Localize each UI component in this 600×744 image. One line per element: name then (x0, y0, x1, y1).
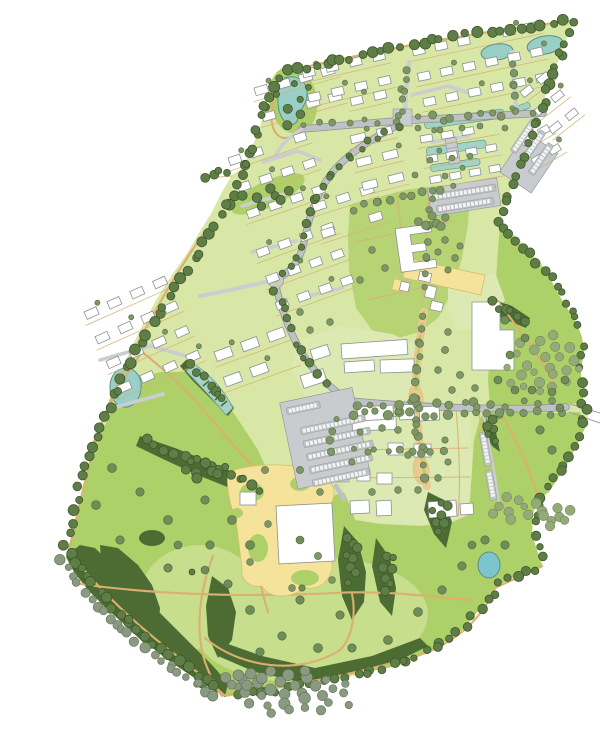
tree (297, 309, 304, 316)
tree (382, 265, 389, 272)
tree (442, 437, 448, 443)
house (430, 175, 442, 184)
tree (521, 334, 529, 342)
tree (261, 466, 268, 473)
tree (174, 541, 182, 549)
tree (468, 541, 476, 549)
tree (456, 371, 463, 378)
tree (395, 487, 402, 494)
tree (511, 386, 519, 394)
tree (314, 552, 321, 559)
tree (296, 596, 304, 604)
tree (502, 125, 508, 131)
tree (369, 247, 376, 254)
sports-hall (276, 503, 335, 564)
tree (336, 611, 344, 619)
tree (427, 449, 434, 456)
tree (348, 644, 356, 652)
house (118, 321, 133, 334)
tree (452, 255, 459, 262)
tree (459, 125, 465, 131)
tree (278, 632, 286, 640)
tree (299, 585, 305, 591)
house (107, 297, 122, 310)
house (489, 164, 501, 173)
tree (561, 376, 569, 384)
tree (228, 516, 237, 525)
tree (307, 327, 314, 334)
tree (536, 426, 544, 434)
tree (548, 388, 556, 396)
tree (442, 173, 448, 179)
house (485, 144, 497, 153)
tree (445, 459, 451, 465)
tree (415, 487, 422, 494)
tree (412, 172, 418, 178)
tree (467, 153, 473, 159)
tree (472, 385, 479, 392)
tree (379, 425, 386, 432)
tree (427, 157, 433, 163)
tree (405, 452, 412, 459)
tree (314, 644, 323, 653)
tree (296, 536, 304, 544)
tree (414, 608, 423, 617)
tree (247, 559, 254, 566)
tree (365, 449, 371, 455)
house (84, 307, 99, 320)
tree (445, 329, 452, 336)
tree (116, 536, 124, 544)
tree (369, 489, 376, 496)
tree (437, 127, 443, 133)
tree (357, 429, 363, 435)
tree (349, 459, 355, 465)
tree (548, 446, 556, 454)
house (548, 121, 562, 134)
tree (412, 429, 419, 436)
tree (317, 489, 324, 496)
leisure-pavilion (240, 492, 256, 505)
tree (435, 249, 441, 255)
tree (296, 466, 303, 473)
tree (136, 488, 144, 496)
tree (329, 577, 336, 584)
tree (441, 346, 448, 353)
tree (435, 367, 442, 374)
tree (442, 237, 449, 244)
tree (256, 648, 264, 656)
tree (265, 521, 272, 528)
tree (384, 636, 393, 645)
tree (327, 319, 334, 326)
tree (445, 267, 451, 273)
tree (357, 277, 364, 284)
hedge-spur (201, 167, 231, 182)
tree (108, 464, 117, 473)
house (130, 286, 145, 299)
tree (556, 404, 564, 412)
tree (494, 376, 502, 384)
tree (164, 564, 172, 572)
tree (501, 316, 509, 324)
tree (224, 580, 232, 588)
tree (201, 566, 209, 574)
tree (449, 155, 455, 161)
house (449, 171, 461, 180)
tree (435, 475, 442, 482)
tree (481, 536, 489, 544)
tree (501, 541, 509, 549)
tree (246, 541, 255, 550)
house (228, 154, 242, 165)
tree (458, 562, 466, 570)
tree (395, 427, 402, 434)
tree (528, 386, 536, 394)
tree (438, 586, 446, 594)
tree (457, 243, 463, 249)
tree (206, 541, 214, 549)
tree (477, 123, 483, 129)
tree (201, 496, 209, 504)
tree (449, 387, 456, 394)
tree (189, 569, 195, 575)
house (469, 168, 481, 177)
masterplan-canvas (0, 0, 600, 744)
tree (164, 516, 173, 525)
tree (506, 351, 514, 359)
house (95, 331, 110, 344)
tree (415, 125, 421, 131)
tree (92, 501, 101, 510)
house (420, 134, 433, 143)
house (551, 90, 565, 103)
pond-southeast (478, 552, 500, 578)
masterplan-svg (0, 0, 600, 744)
tree (289, 585, 296, 592)
house (565, 108, 579, 121)
tree (246, 606, 255, 615)
